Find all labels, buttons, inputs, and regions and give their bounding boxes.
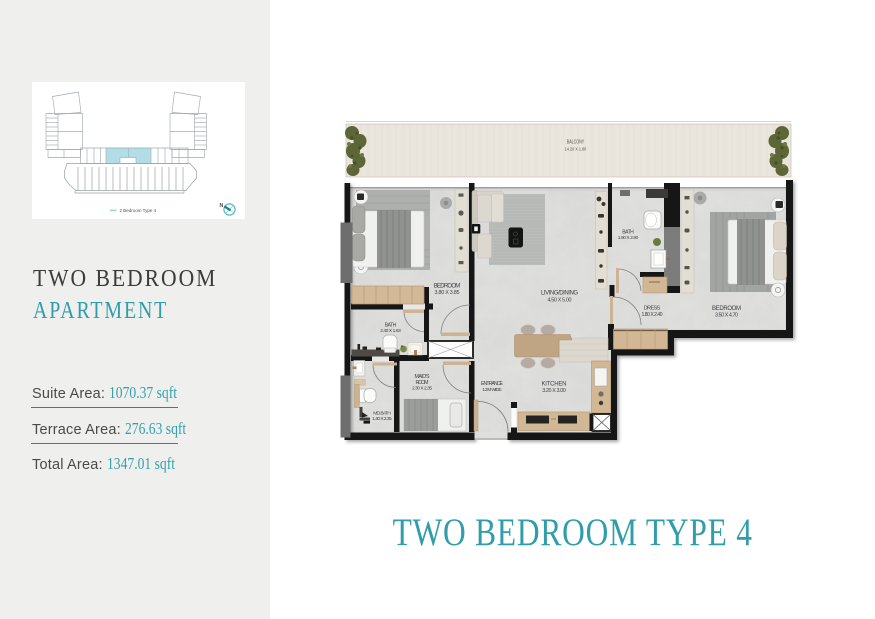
svg-text:1.80 X 2.40: 1.80 X 2.40: [642, 312, 663, 318]
svg-text:KITCHEN: KITCHEN: [542, 382, 567, 388]
svg-text:BATH: BATH: [385, 323, 397, 329]
svg-text:3.50 X 4.70: 3.50 X 4.70: [715, 313, 738, 319]
svg-text:BATH: BATH: [622, 230, 634, 236]
svg-text:BEDROOM: BEDROOM: [712, 306, 741, 312]
svg-text:3.80 X 3.85: 3.80 X 3.85: [435, 290, 460, 296]
svg-text:LIVING/DINING: LIVING/DINING: [541, 291, 578, 297]
svg-text:2.30 X 2.35: 2.30 X 2.35: [412, 386, 432, 392]
svg-text:4.50 X 5.00: 4.50 X 5.00: [548, 298, 572, 304]
svg-text:1.3 M WIDE: 1.3 M WIDE: [482, 387, 502, 393]
svg-text:N: N: [220, 203, 224, 209]
svg-text:BALCONY: BALCONY: [567, 140, 585, 146]
svg-text:BEDROOM: BEDROOM: [434, 284, 461, 290]
svg-text:2.40 X 1.63: 2.40 X 1.63: [380, 328, 401, 334]
svg-text:14.20 X 1.80: 14.20 X 1.80: [565, 147, 587, 153]
svg-text:1.40 X 2.35: 1.40 X 2.35: [372, 416, 392, 422]
svg-text:DRESS: DRESS: [644, 306, 661, 312]
svg-text:ROOM: ROOM: [416, 380, 429, 386]
svg-text:MD. BATH: MD. BATH: [373, 411, 391, 417]
svg-text:1.90 X 2.90: 1.90 X 2.90: [618, 235, 639, 241]
svg-text:3.20 X 3.00: 3.20 X 3.00: [542, 388, 566, 394]
svg-text:2 Bedroom Type 4: 2 Bedroom Type 4: [120, 208, 157, 213]
svg-text:ENTRANCE: ENTRANCE: [481, 381, 504, 387]
